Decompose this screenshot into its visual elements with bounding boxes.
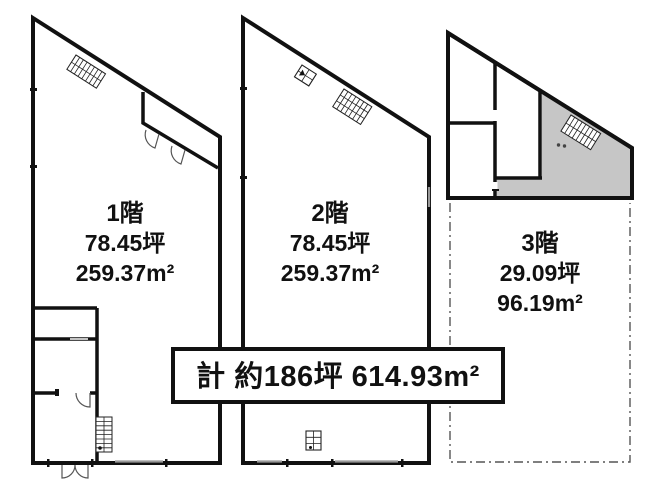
floor-3-name: 3階	[521, 230, 558, 257]
dot-mark	[563, 144, 566, 147]
floor-2-tsubo: 78.45坪	[290, 230, 371, 256]
wall-tick	[286, 459, 289, 467]
wall-tick	[401, 459, 404, 467]
wall-tick	[30, 88, 37, 91]
floor-1-area: 259.37m²	[76, 260, 175, 286]
wall-tick	[30, 165, 37, 168]
wall-tick	[240, 87, 247, 90]
floor-3-area: 96.19m²	[497, 290, 583, 316]
wall-tick	[91, 459, 94, 467]
stairs-icon	[96, 417, 112, 452]
wall-tick	[240, 176, 247, 179]
elevator-icon	[306, 431, 321, 450]
total-label: 計 約186坪 614.93m²	[196, 359, 480, 393]
wall-tick	[47, 459, 50, 467]
floor-3-tsubo: 29.09坪	[500, 260, 581, 286]
door-jamb-mark	[492, 189, 499, 191]
floor-1-tsubo: 78.45坪	[85, 230, 166, 256]
wall-tick	[331, 459, 334, 467]
door-jamb-mark	[55, 389, 59, 396]
floor-2-area: 259.37m²	[281, 260, 380, 286]
floorplan-canvas: 1階 78.45坪 259.37m² 2階 78.45坪 259.37m² 3階…	[0, 0, 662, 481]
total-box: 計 約186坪 614.93m²	[173, 349, 503, 402]
door-gap	[493, 182, 498, 190]
door-swing-icon	[62, 465, 88, 478]
floor-1-name: 1階	[106, 200, 143, 227]
wall-tick	[165, 459, 168, 467]
dot-mark	[557, 143, 560, 146]
floorplan-image: 1階 78.45坪 259.37m² 2階 78.45坪 259.37m² 3階…	[0, 0, 662, 481]
floor-3-label: 3階 29.09坪 96.19m²	[497, 230, 583, 316]
floor-2-name: 2階	[311, 200, 348, 227]
